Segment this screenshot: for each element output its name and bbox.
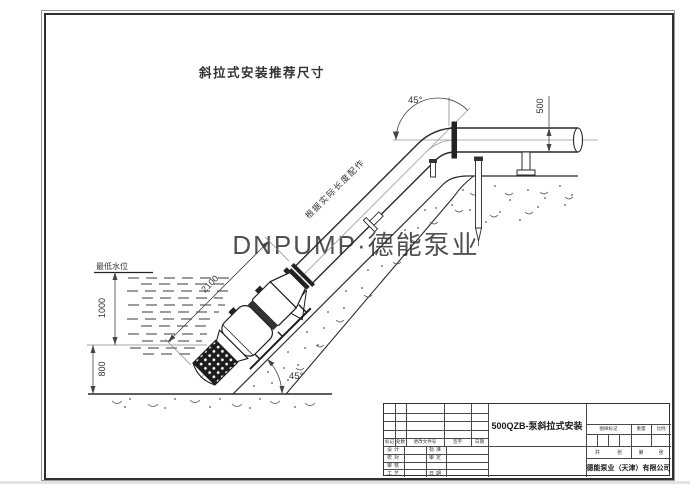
label-process: 工艺 (384, 469, 404, 477)
label-review: 审核 (384, 462, 404, 470)
earth-texture (124, 185, 573, 409)
revision-col-docno: 更改文件号 (406, 438, 444, 446)
product-title: 500QZB-泵斜拉式安装 (488, 404, 586, 446)
label-check: 校对 (384, 454, 404, 462)
submersible-pump (182, 255, 326, 399)
dim-pipe-diameter: 500 (535, 96, 552, 152)
revision-col-sign: 签字 (444, 438, 471, 446)
svg-text:45°: 45° (289, 371, 304, 382)
dim-bottom-clearance: 800 (91, 345, 108, 394)
sheet-page-unit: 张 (658, 449, 663, 456)
label-blank (426, 462, 446, 470)
title-block: 标记 处数 更改文件号 签字 日期 设计 校对 审核 工艺 标准 审定 日期 5… (383, 403, 670, 476)
ground-and-slope (88, 176, 578, 394)
label-date: 日期 (426, 469, 446, 477)
svg-text:1000: 1000 (97, 298, 107, 318)
label-standard: 标准 (426, 446, 446, 454)
revision-col-date: 日期 (471, 438, 488, 446)
svg-text:800: 800 (97, 361, 107, 376)
revision-col-mark: 标记 (384, 438, 395, 446)
water-level-label: 最低水位 (96, 261, 128, 271)
discharge-pipe (295, 128, 583, 284)
label-weight: 重量 (631, 424, 651, 434)
svg-text:500: 500 (535, 98, 545, 113)
label-approve: 审定 (426, 454, 446, 462)
label-drawing-mark: 图样标记 (586, 424, 631, 434)
revision-col-count: 处数 (395, 438, 406, 446)
svg-text:45°: 45° (408, 95, 423, 106)
bend-flange (452, 122, 458, 159)
bend-support-post (430, 160, 437, 178)
sheet-page: 第 张 (631, 446, 671, 458)
pipe-length-note: 根据实际长度配作 (303, 157, 367, 221)
label-scale: 比例 (651, 424, 671, 434)
sheet-edge-shadow (0, 481, 690, 484)
sheet-total: 共 张 (586, 446, 631, 458)
sheet-total-label: 共 (595, 449, 600, 456)
company-name: 德能泵业（天津）有限公司 (586, 458, 671, 477)
sheet-total-unit: 张 (617, 449, 622, 456)
sheet-page-label: 第 (638, 449, 643, 456)
drawing-sheet: 斜拉式安装推荐尺寸 DNPUMP·德能泵业 (0, 0, 690, 488)
pipe-support-post (517, 152, 535, 175)
label-design: 设计 (384, 446, 404, 454)
watermark-text: DNPUMP·德能泵业 (232, 230, 479, 260)
earth-squiggles (112, 192, 573, 407)
